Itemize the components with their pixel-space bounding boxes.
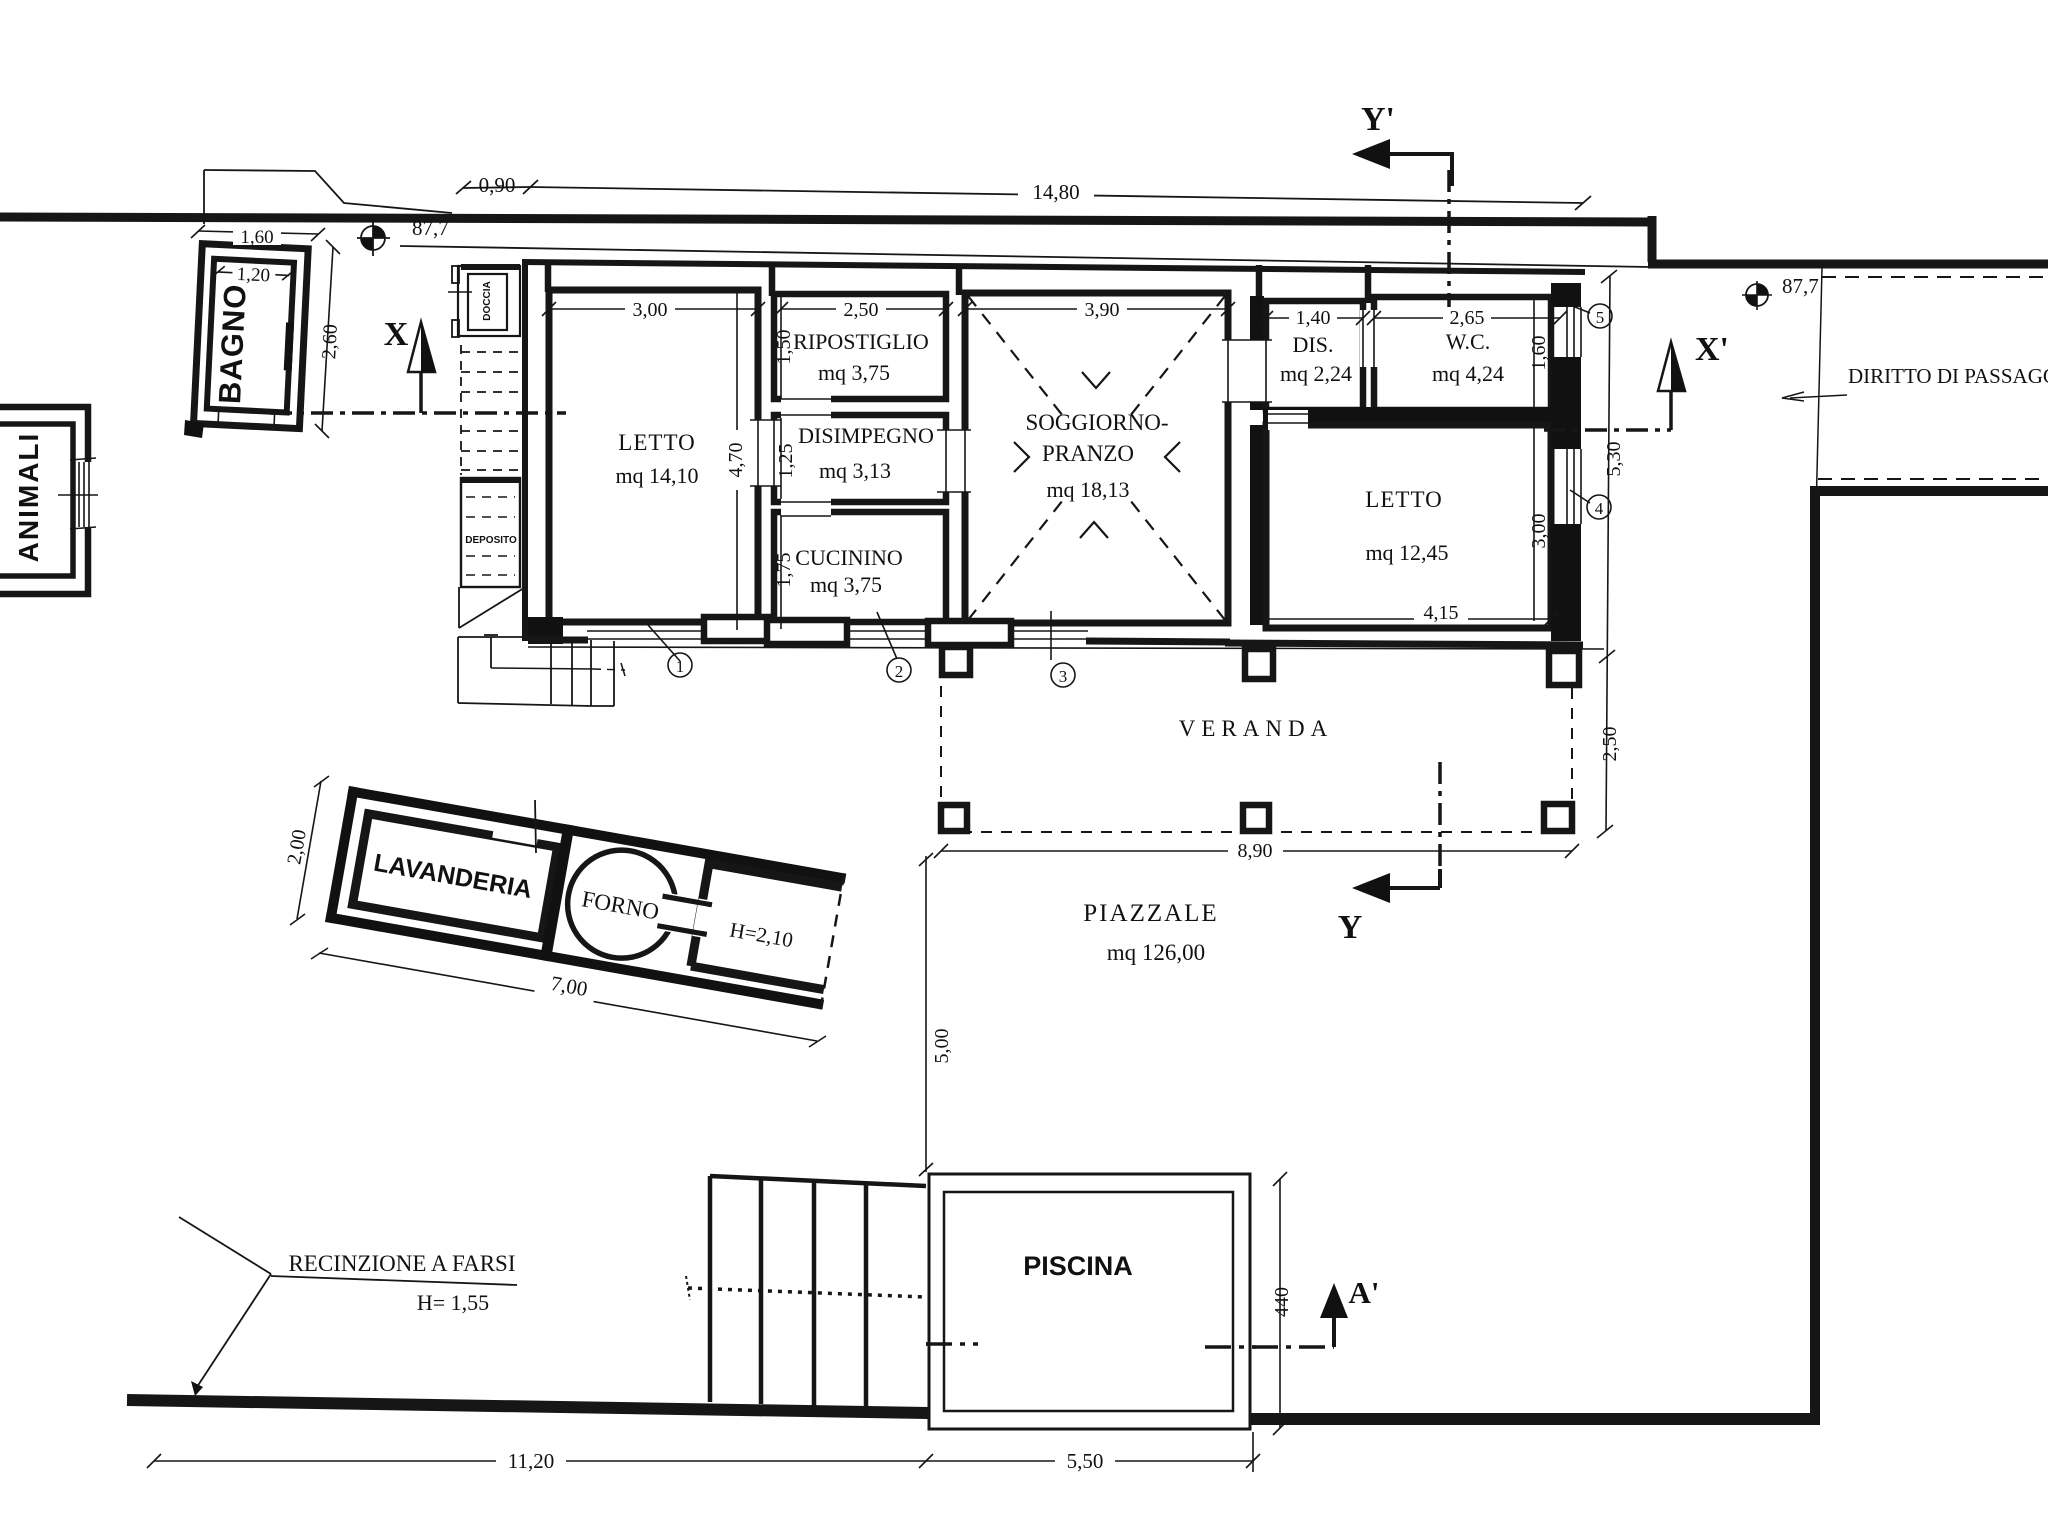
svg-text:ANIMALI: ANIMALI [13,432,44,563]
svg-text:3,00: 3,00 [1528,514,1550,549]
svg-text:X: X [384,316,409,353]
svg-text:2: 2 [895,662,904,681]
svg-text:mq 12,45: mq 12,45 [1365,540,1448,565]
svg-text:1,75: 1,75 [773,553,795,588]
svg-text:SOGGIORNO-: SOGGIORNO- [1025,410,1168,435]
svg-text:1,20: 1,20 [236,264,270,287]
svg-text:DISIMPEGNO: DISIMPEGNO [798,423,934,448]
svg-text:2,65: 2,65 [1450,307,1485,329]
svg-text:87,7: 87,7 [1782,274,1819,298]
svg-text:87,7: 87,7 [412,216,449,240]
svg-text:14,80: 14,80 [1032,180,1079,204]
svg-text:LETTO: LETTO [618,430,695,455]
svg-text:PISCINA: PISCINA [1023,1251,1133,1281]
svg-text:0,90: 0,90 [479,173,516,197]
svg-text:CUCININO: CUCININO [795,545,903,570]
svg-text:3,90: 3,90 [1085,299,1120,321]
svg-text:PRANZO: PRANZO [1042,441,1134,466]
svg-text:mq 3,75: mq 3,75 [818,360,890,385]
svg-text:1,40: 1,40 [1296,307,1331,329]
svg-text:2,50: 2,50 [1599,727,1621,762]
svg-text:W.C.: W.C. [1446,329,1490,354]
svg-text:DIRITTO DI PASSAGGIO: DIRITTO DI PASSAGGIO [1848,364,2048,388]
svg-text:4: 4 [1595,499,1604,518]
svg-text:DEPOSITO: DEPOSITO [465,535,517,546]
svg-text:DIS.: DIS. [1293,332,1334,357]
svg-text:mq 126,00: mq 126,00 [1107,940,1205,965]
svg-text:1,25: 1,25 [775,444,797,479]
svg-text:4,15: 4,15 [1424,602,1459,624]
svg-text:440: 440 [1271,1287,1293,1317]
svg-text:A': A' [1349,1275,1380,1310]
svg-text:BAGNO: BAGNO [212,283,253,405]
svg-text:mq 3,13: mq 3,13 [819,458,891,483]
svg-text:5: 5 [1596,308,1605,327]
svg-text:11,20: 11,20 [508,1449,554,1473]
svg-text:2,50: 2,50 [844,299,879,321]
svg-text:3,00: 3,00 [633,299,668,321]
svg-text:RECINZIONE A FARSI: RECINZIONE A FARSI [288,1251,515,1276]
svg-text:2,60: 2,60 [318,324,342,360]
svg-text:mq 18,13: mq 18,13 [1046,477,1129,502]
svg-text:mq 3,75: mq 3,75 [810,572,882,597]
svg-text:mq 2,24: mq 2,24 [1280,361,1352,386]
svg-text:1: 1 [676,657,685,676]
svg-text:1,50: 1,50 [773,330,795,365]
svg-text:5,30: 5,30 [1603,442,1625,477]
svg-text:RIPOSTIGLIO: RIPOSTIGLIO [793,329,929,354]
svg-text:4,70: 4,70 [725,443,747,478]
svg-text:5,00: 5,00 [931,1029,953,1064]
svg-text:LETTO: LETTO [1365,487,1442,512]
svg-text:PIAZZALE: PIAZZALE [1083,900,1218,927]
svg-text:H= 1,55: H= 1,55 [417,1290,489,1315]
svg-text:mq 14,10: mq 14,10 [615,463,698,488]
svg-text:3: 3 [1059,667,1068,686]
svg-text:Y: Y [1338,909,1363,946]
svg-text:VERANDA: VERANDA [1179,716,1333,741]
svg-text:8,90: 8,90 [1238,840,1273,862]
svg-text:1,60: 1,60 [1528,336,1550,371]
svg-text:mq 4,24: mq 4,24 [1432,361,1504,386]
svg-text:1,60: 1,60 [240,227,273,248]
svg-text:5,50: 5,50 [1067,1449,1104,1473]
svg-text:X': X' [1695,331,1729,368]
svg-text:DOCCIA: DOCCIA [482,281,493,320]
svg-text:Y': Y' [1361,101,1395,138]
